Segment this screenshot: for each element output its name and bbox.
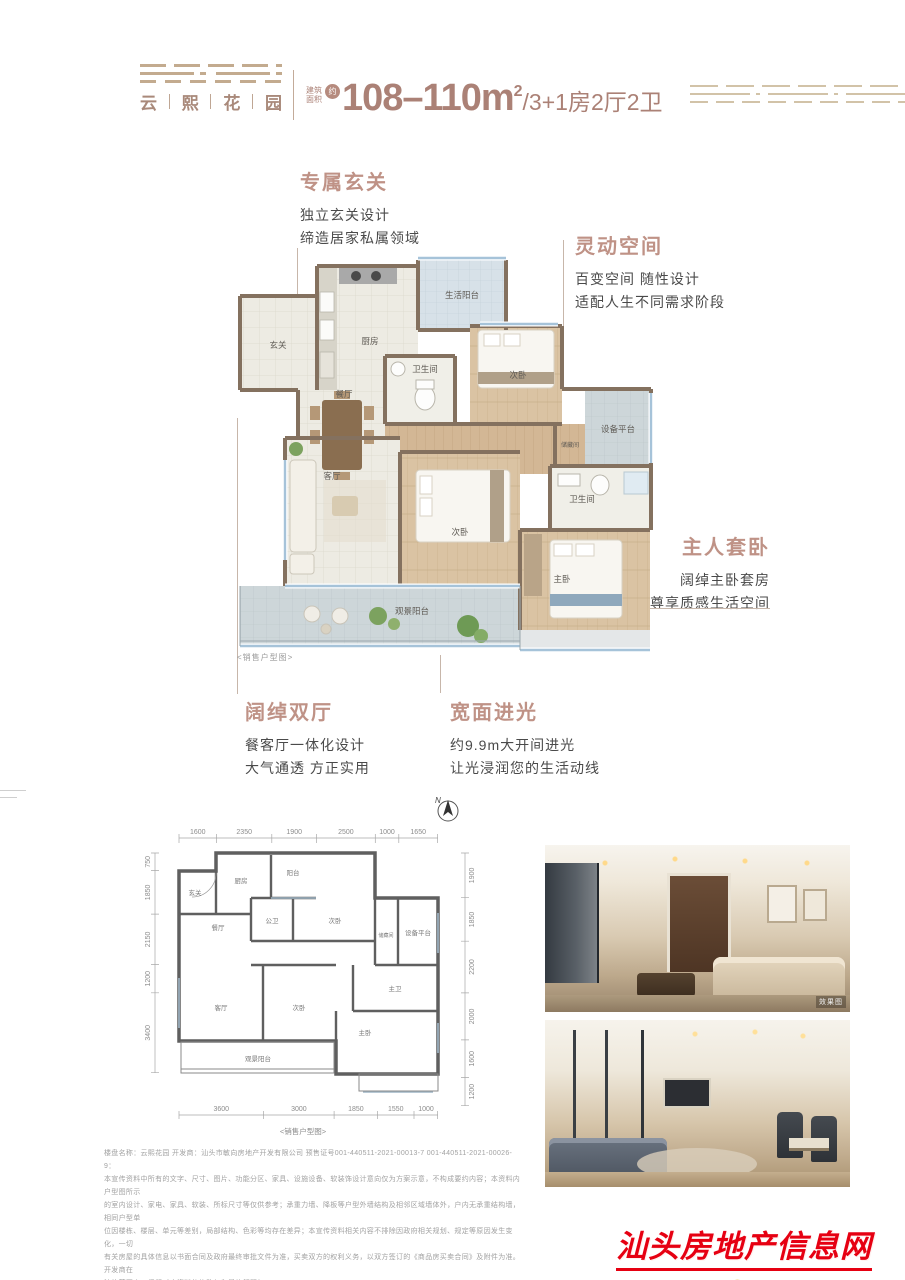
svg-text:主卫: 主卫	[389, 984, 403, 993]
photo1-art-frame	[767, 885, 797, 923]
photo1-cabinet	[545, 863, 599, 983]
room-label-view-balcony: 观景阳台	[395, 606, 429, 616]
svg-text:阳台: 阳台	[287, 868, 300, 877]
photo2-dining-table	[789, 1138, 829, 1151]
svg-text:次卧: 次卧	[329, 916, 343, 925]
logo-mark-line	[140, 64, 282, 67]
svg-text:玄关: 玄关	[189, 888, 203, 897]
svg-text:1850: 1850	[348, 1106, 364, 1113]
logo-char: 熙	[182, 89, 199, 114]
room-label-bedroom1: 次卧	[509, 370, 527, 380]
disclaimer-line: 位因楼栋、楼层、单元等差别，局部结构、色彩等均存在差异；本宣传资料相关内容不排除…	[104, 1225, 522, 1251]
svg-text:2150: 2150	[145, 932, 152, 948]
note-light-title: 宽面进光	[450, 696, 680, 725]
disclaimer-line: 本宣传资料中所有的文字、尺寸、图片、功能分区、家具、设施设备、软装饰设计意向仅为…	[104, 1173, 522, 1199]
plan-walls	[179, 853, 438, 1074]
room-label-bedroom2: 次卧	[451, 527, 469, 537]
watermark-rule	[616, 1268, 872, 1271]
room-label-entry: 玄关	[269, 340, 287, 350]
photo1-floor	[545, 995, 850, 1012]
watermark-url-net: .NET	[805, 1274, 872, 1280]
rendered-floor-plan: 玄关 厨房 生活阳台 餐厅 卫生间 次卧 设备平台 储藏间 客厅 次卧 卫生间 …	[228, 248, 690, 660]
svg-text:1200: 1200	[145, 971, 152, 987]
header-deco-line	[690, 101, 905, 103]
logo-mark-line	[140, 72, 282, 75]
room-label-bath2: 卫生间	[569, 494, 595, 504]
dimensioned-floor-plan: 1600 2350 1900 2500 1000 1650 3600 3000 …	[103, 793, 503, 1163]
note-halls-line1: 餐客厅一体化设计	[245, 734, 475, 757]
area-prefix-2: 面积	[306, 95, 322, 104]
interior-photo-1: 效果图	[545, 845, 850, 1012]
photo2-tv-console	[663, 1078, 711, 1108]
svg-text:1550: 1550	[388, 1106, 404, 1113]
flyer-page: 云 熙 花 园 建筑 面积 约 108–110m2/3+1房2厅2卫 专属玄关 …	[0, 0, 905, 1280]
svg-text:1600: 1600	[469, 1051, 476, 1067]
svg-text:公卫: 公卫	[266, 917, 280, 925]
logo-mark-line	[140, 80, 282, 83]
edge-mark	[0, 797, 17, 798]
watermark-url-www: WWW.	[641, 1274, 728, 1280]
area-value: 108–110m2/3+1房2厅2卫	[342, 70, 663, 124]
disclaimer-line: 的室内设计、家电、家具、软装、所标尺寸等仅供参考；承重力墙、降板等户型外墙结构及…	[104, 1199, 522, 1225]
note-entry-title: 专属玄关	[300, 166, 530, 195]
watermark: 汕头房地产信息网 WWW.STRE.NET	[616, 1221, 872, 1280]
area-title: 建筑 面积 约 108–110m2/3+1房2厅2卫	[306, 70, 663, 124]
interior-photo-2	[545, 1020, 850, 1187]
disclaimer-line: 楼盘名称：云熙花园 开发商：汕头市敏向房地产开发有限公司 预售证号001-440…	[104, 1147, 522, 1173]
area-number: 108–110m	[342, 77, 514, 119]
logo-char: 园	[265, 89, 282, 114]
svg-text:2200: 2200	[469, 959, 476, 975]
photo1-caption: 效果图	[816, 996, 846, 1008]
svg-text:1850: 1850	[469, 912, 476, 928]
svg-text:1200: 1200	[469, 1084, 476, 1100]
note-entry-line1: 独立玄关设计	[300, 204, 530, 227]
svg-text:客厅: 客厅	[215, 1003, 229, 1012]
svg-text:3600: 3600	[214, 1106, 230, 1113]
room-label-living: 客厅	[323, 471, 341, 481]
svg-text:750: 750	[145, 856, 152, 868]
header-divider	[293, 70, 294, 120]
header-deco-line	[690, 93, 905, 95]
north-arrow: N	[435, 796, 458, 821]
svg-text:2350: 2350	[236, 829, 252, 836]
svg-text:储藏间: 储藏间	[378, 932, 393, 939]
area-prefix-1: 建筑	[306, 86, 322, 95]
room-label-bath1: 卫生间	[412, 364, 438, 374]
svg-text:1900: 1900	[286, 829, 302, 836]
note-entry-line2: 缔造居家私属领域	[300, 227, 530, 250]
svg-text:1000: 1000	[418, 1106, 434, 1113]
area-approx-badge: 约	[325, 84, 340, 99]
svg-text:3000: 3000	[291, 1106, 307, 1113]
room-label-kitchen: 厨房	[361, 336, 378, 346]
dimension-lines	[151, 834, 469, 1119]
room-label-storage: 储藏间	[561, 441, 579, 449]
svg-text:次卧: 次卧	[293, 1003, 307, 1012]
disclaimer: 楼盘名称：云熙花园 开发商：汕头市敏向房地产开发有限公司 预售证号001-440…	[104, 1147, 522, 1280]
photo2-dining-chair	[777, 1112, 803, 1158]
svg-text:餐厅: 餐厅	[212, 923, 226, 932]
watermark-url: WWW.STRE.NET	[616, 1274, 872, 1280]
room-label-master: 主卧	[553, 574, 571, 584]
note-light-line1: 约9.9m大开间进光	[450, 734, 680, 757]
room-label-dining: 餐厅	[335, 389, 353, 399]
note-halls-title: 阔绰双厅	[245, 696, 475, 725]
logo-char: 花	[223, 89, 240, 114]
disclaimer-line: 有关房屋的具体信息以书面合同及政府最终审批文件为准，买卖双方的权利义务，以双方签…	[104, 1251, 522, 1277]
svg-text:2000: 2000	[469, 1009, 476, 1025]
svg-text:观景阳台: 观景阳台	[245, 1054, 271, 1063]
svg-text:主卧: 主卧	[359, 1028, 373, 1037]
svg-text:3400: 3400	[145, 1025, 152, 1041]
edge-mark	[0, 790, 26, 791]
note-halls: 阔绰双厅 餐客厅一体化设计 大气通透 方正实用	[245, 696, 475, 780]
logo-name: 云 熙 花 园	[140, 89, 282, 114]
area-prefix: 建筑 面积	[306, 86, 322, 104]
svg-text:1650: 1650	[410, 829, 426, 836]
connector-line	[440, 655, 441, 693]
watermark-url-stre: STRE	[727, 1274, 804, 1280]
logo-char: 云	[140, 89, 157, 114]
svg-text:2500: 2500	[338, 829, 354, 836]
watermark-site-name: 汕头房地产信息网	[616, 1221, 872, 1266]
svg-text:1000: 1000	[379, 829, 395, 836]
layout-suffix: /3+1房2厅2卫	[523, 89, 663, 115]
photo1-sofa	[713, 957, 845, 999]
svg-text:N: N	[435, 796, 441, 805]
header-deco-line	[690, 85, 905, 87]
area-sup: 2	[514, 83, 523, 100]
balconies	[181, 1042, 438, 1091]
logo: 云 熙 花 园	[140, 64, 282, 114]
note-light-line2: 让光浸润您的生活动线	[450, 757, 680, 780]
note-light: 宽面进光 约9.9m大开间进光 让光浸润您的生活动线	[450, 696, 680, 780]
lower-plan-caption: <销售户型图>	[280, 1126, 327, 1136]
svg-text:设备平台: 设备平台	[405, 928, 431, 937]
note-entry: 专属玄关 独立玄关设计 缔造居家私属领域	[300, 166, 530, 250]
rendered-plan-caption: <销售户型图>	[237, 652, 293, 663]
svg-text:1900: 1900	[469, 868, 476, 884]
note-halls-line2: 大气通透 方正实用	[245, 757, 475, 780]
svg-text:1850: 1850	[145, 885, 152, 901]
photo2-window-wall	[545, 1030, 644, 1148]
room-label-equipment: 设备平台	[601, 424, 635, 434]
photo1-coffee-table	[637, 973, 695, 997]
photo2-floor	[545, 1172, 850, 1187]
photo1-art-frame	[803, 889, 827, 921]
room-label-life-balcony: 生活阳台	[445, 290, 479, 300]
svg-text:1600: 1600	[190, 829, 206, 836]
svg-text:厨房: 厨房	[235, 876, 248, 885]
